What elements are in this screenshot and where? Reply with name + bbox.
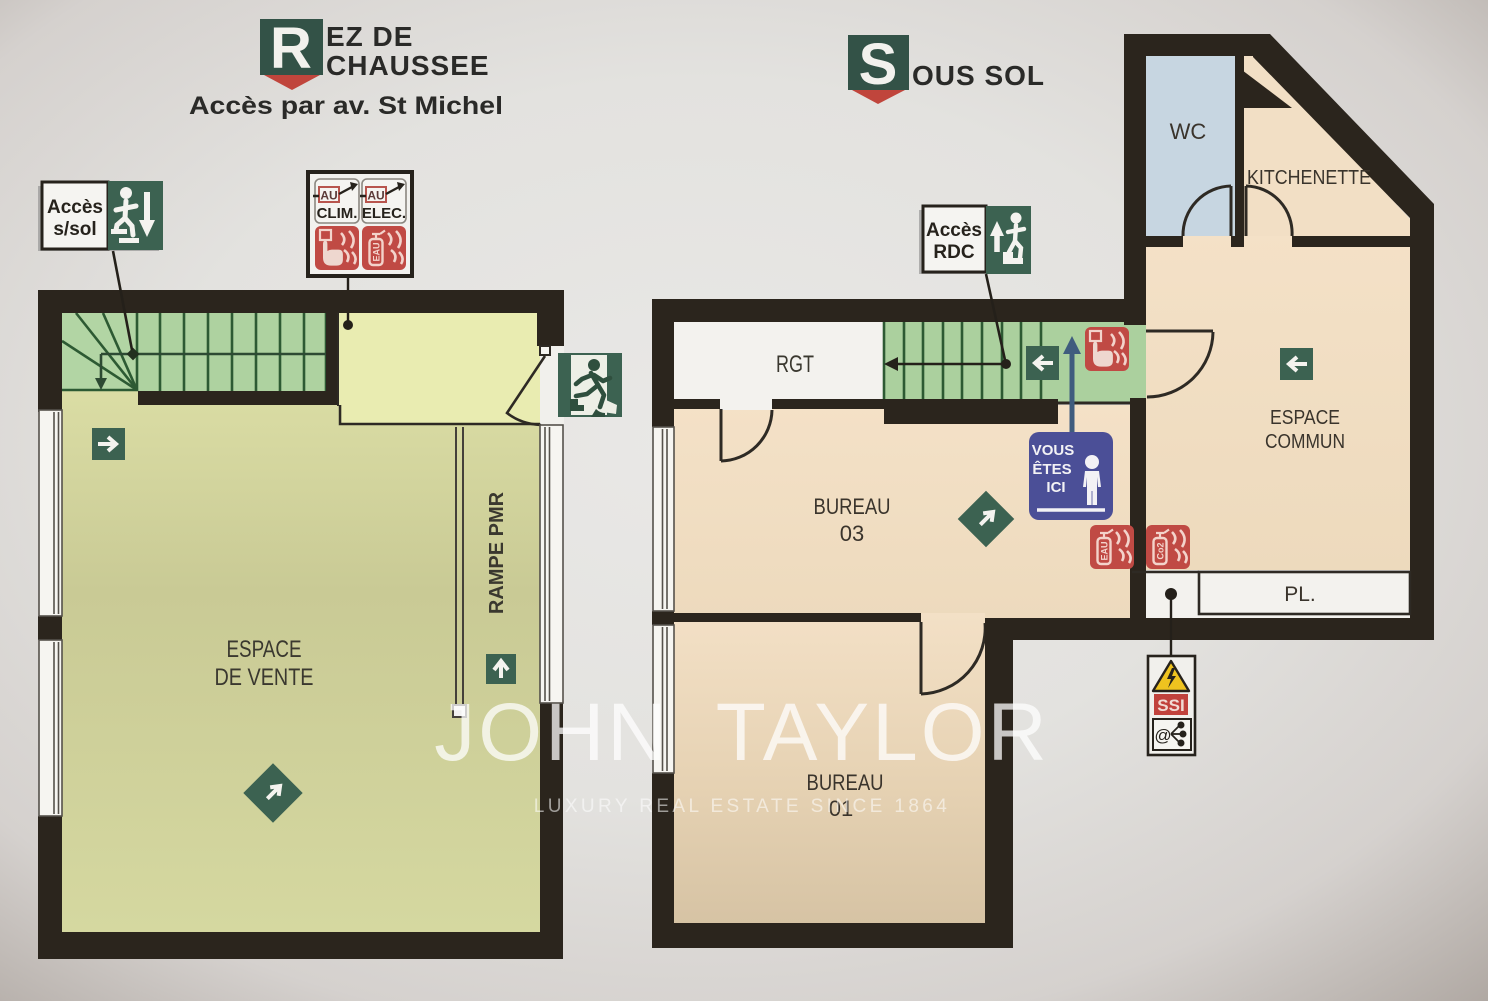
- svg-text:JOHN TAYLOR: JOHN TAYLOR: [434, 687, 1049, 778]
- svg-text:AU: AU: [367, 189, 384, 203]
- svg-text:VOUS: VOUS: [1032, 442, 1075, 459]
- svg-text:s/sol: s/sol: [53, 219, 96, 240]
- svg-text:Accès par av. St Michel: Accès par av. St Michel: [189, 92, 503, 120]
- svg-text:@: @: [1154, 726, 1171, 745]
- svg-text:Accès: Accès: [47, 197, 103, 218]
- svg-text:LUXURY REAL ESTATE SINCE 1864: LUXURY REAL ESTATE SINCE 1864: [534, 796, 950, 817]
- svg-text:ICI: ICI: [1046, 479, 1065, 496]
- svg-text:R: R: [270, 16, 312, 81]
- svg-text:KITCHENETTE: KITCHENETTE: [1247, 167, 1371, 189]
- svg-text:EAU: EAU: [1100, 541, 1110, 560]
- svg-text:RGT: RGT: [776, 351, 814, 378]
- svg-text:DE VENTE: DE VENTE: [215, 664, 314, 691]
- svg-text:OUS SOL: OUS SOL: [912, 60, 1045, 91]
- svg-text:PL.: PL.: [1284, 583, 1316, 606]
- svg-text:Accès: Accès: [926, 220, 982, 241]
- svg-text:WC: WC: [1170, 119, 1207, 144]
- svg-text:SSI: SSI: [1157, 696, 1184, 715]
- svg-text:BUREAU: BUREAU: [814, 494, 891, 519]
- svg-text:RDC: RDC: [933, 242, 974, 263]
- svg-text:EAU: EAU: [372, 242, 382, 261]
- svg-text:CHAUSSEE: CHAUSSEE: [326, 50, 490, 81]
- svg-text:ÊTES: ÊTES: [1032, 460, 1071, 478]
- svg-text:S: S: [859, 32, 898, 97]
- svg-text:ESPACE: ESPACE: [227, 636, 302, 663]
- svg-text:Co2: Co2: [1156, 542, 1166, 559]
- svg-text:ESPACE: ESPACE: [1270, 407, 1340, 429]
- svg-text:AU: AU: [320, 189, 337, 203]
- svg-text:03: 03: [840, 521, 864, 546]
- svg-text:ELEC.: ELEC.: [362, 205, 406, 222]
- svg-text:COMMUN: COMMUN: [1265, 431, 1345, 453]
- svg-text:EZ DE: EZ DE: [326, 21, 413, 52]
- svg-text:RAMPE PMR: RAMPE PMR: [486, 491, 508, 614]
- svg-text:CLIM.: CLIM.: [317, 205, 358, 222]
